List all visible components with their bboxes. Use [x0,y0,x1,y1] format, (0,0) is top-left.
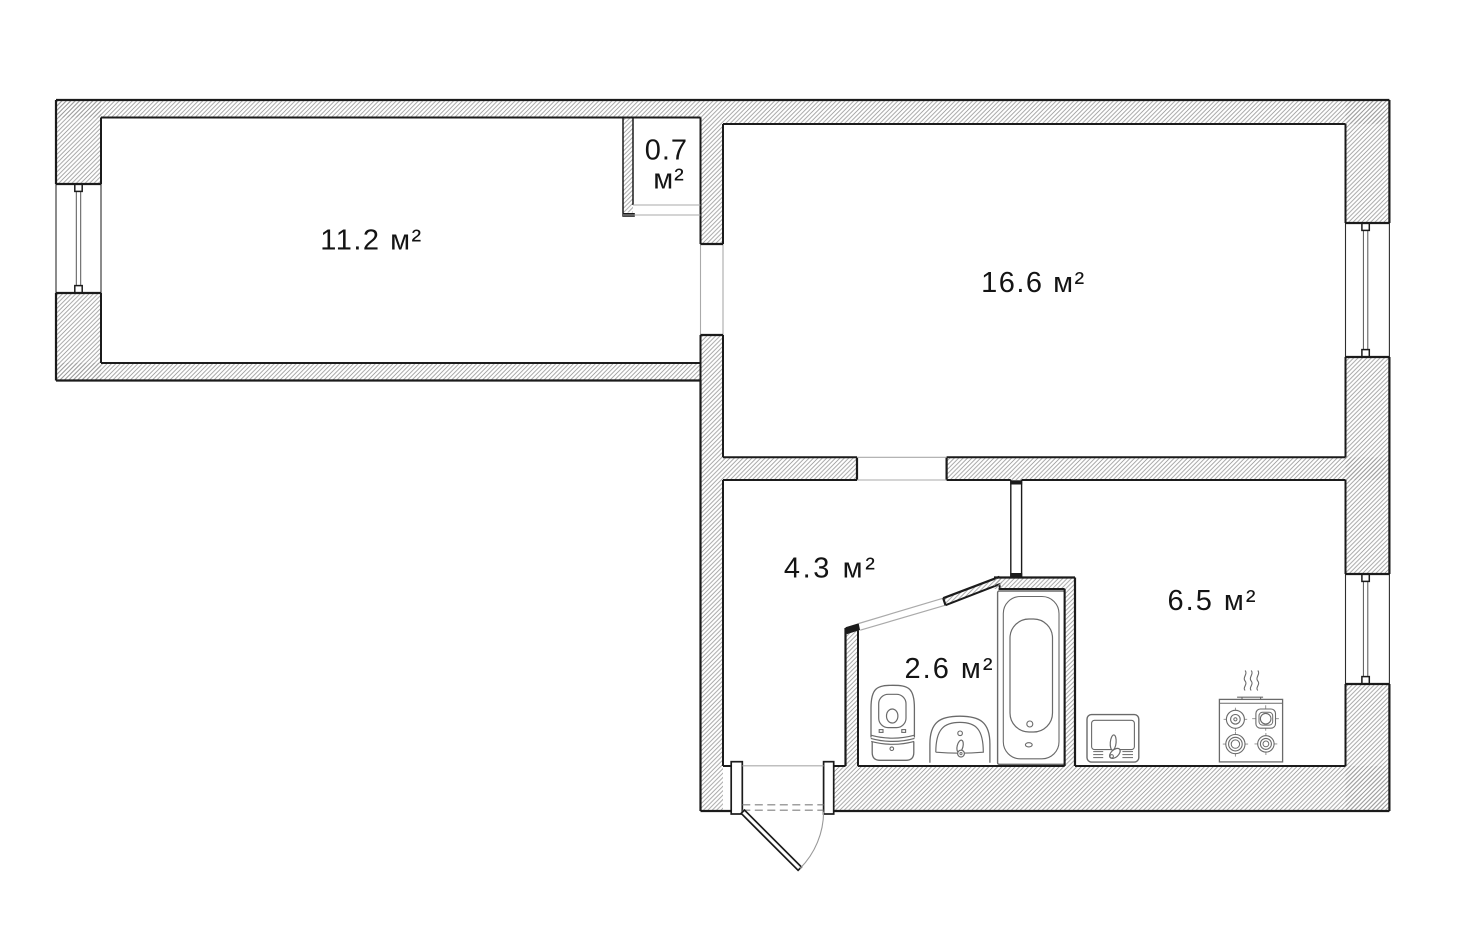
svg-text:11.2 м²: 11.2 м² [320,225,422,257]
svg-text:0.7: 0.7 [645,135,688,167]
svg-text:4.3 м²: 4.3 м² [784,553,878,585]
svg-text:2.6 м²: 2.6 м² [905,653,995,685]
svg-text:16.6 м²: 16.6 м² [981,267,1086,299]
svg-text:м²: м² [653,164,685,196]
svg-text:6.5 м²: 6.5 м² [1168,585,1258,617]
